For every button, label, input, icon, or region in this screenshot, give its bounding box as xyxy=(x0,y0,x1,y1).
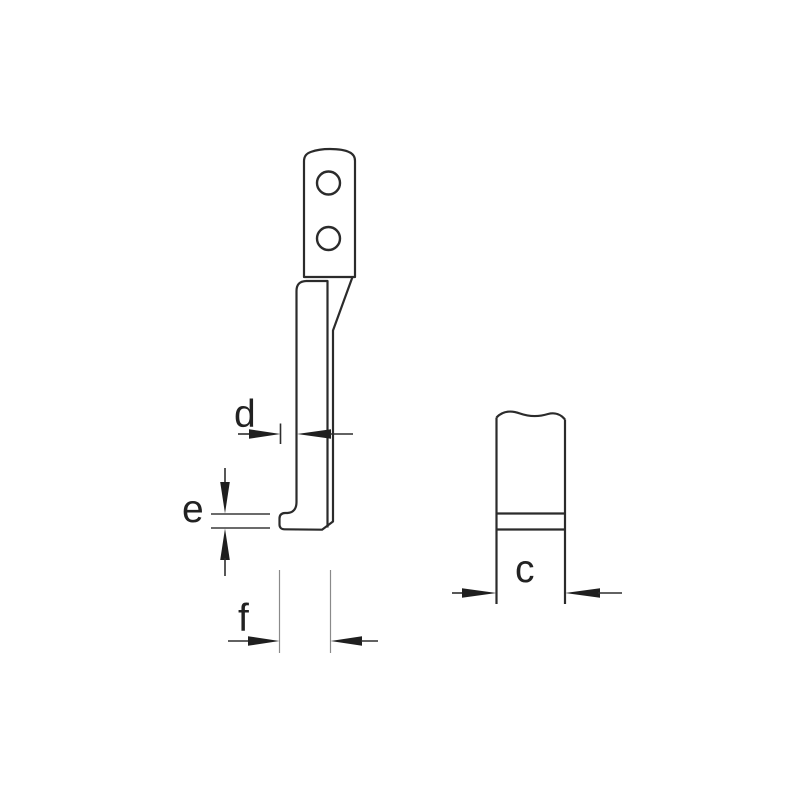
d-left-arrowhead xyxy=(249,429,281,439)
mounting-hole-bottom xyxy=(317,227,340,250)
drawing-canvas: d e f c xyxy=(0,0,800,800)
f-left-arrowhead xyxy=(248,636,280,646)
technical-drawing: d e f c xyxy=(0,0,800,800)
mounting-hole-top xyxy=(317,172,340,195)
dimension-d-label: d xyxy=(234,393,256,436)
e-down-arrowhead xyxy=(220,482,230,514)
e-up-arrowhead xyxy=(220,529,230,561)
dimension-d: d xyxy=(234,393,353,444)
dimension-e: e xyxy=(182,468,270,576)
side-view xyxy=(280,149,356,530)
dimension-c: c xyxy=(452,548,622,598)
f-right-arrowhead xyxy=(331,636,363,646)
break-line-top xyxy=(497,412,566,420)
d-right-arrowhead xyxy=(297,429,331,439)
dimension-c-label: c xyxy=(515,548,535,591)
leg-front-edge xyxy=(306,281,328,528)
dimension-f: f xyxy=(228,570,378,653)
dimension-f-label: f xyxy=(238,597,249,640)
c-right-arrowhead xyxy=(565,588,600,598)
dimension-e-label: e xyxy=(182,488,204,531)
mounting-bar-outline xyxy=(304,149,355,277)
c-left-arrowhead xyxy=(462,588,497,598)
leg-and-foot-silhouette xyxy=(280,278,353,530)
